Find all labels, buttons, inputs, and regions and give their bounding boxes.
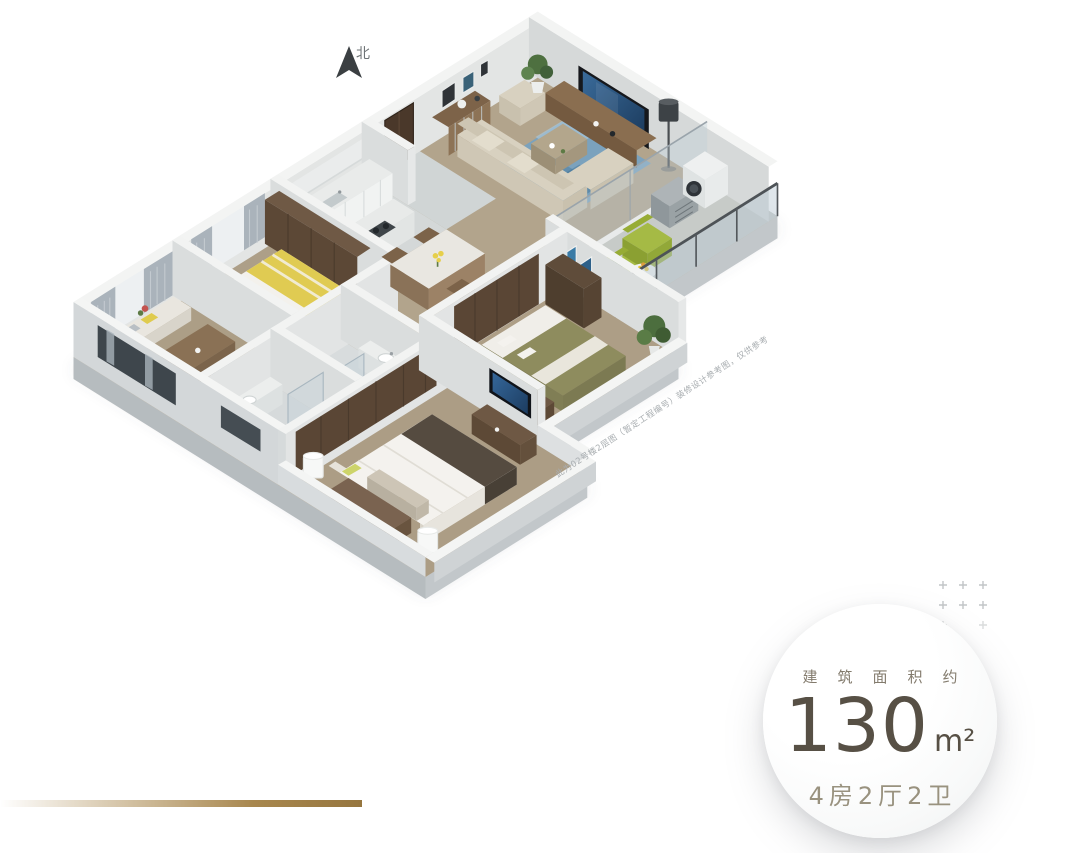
north-arrow-icon: 北: [336, 46, 370, 78]
area-unit: m²: [934, 724, 975, 759]
area-badge: 建筑面积约 130 m² 4房2厅2卫: [763, 604, 997, 838]
layout-label: 4房2厅2卫: [763, 776, 997, 811]
north-label: 北: [356, 46, 370, 62]
vase: [457, 100, 466, 109]
gold-accent-line: [0, 800, 362, 807]
page: 北 此为02号楼2层图（暂定工程编号）装修设计参考图，仅供参考 建筑面积约 13…: [0, 0, 1080, 853]
area-value: 130: [785, 688, 929, 764]
area-value-row: 130 m²: [763, 688, 997, 766]
plus-pattern: [939, 581, 987, 629]
apartment-model: [74, 12, 780, 599]
